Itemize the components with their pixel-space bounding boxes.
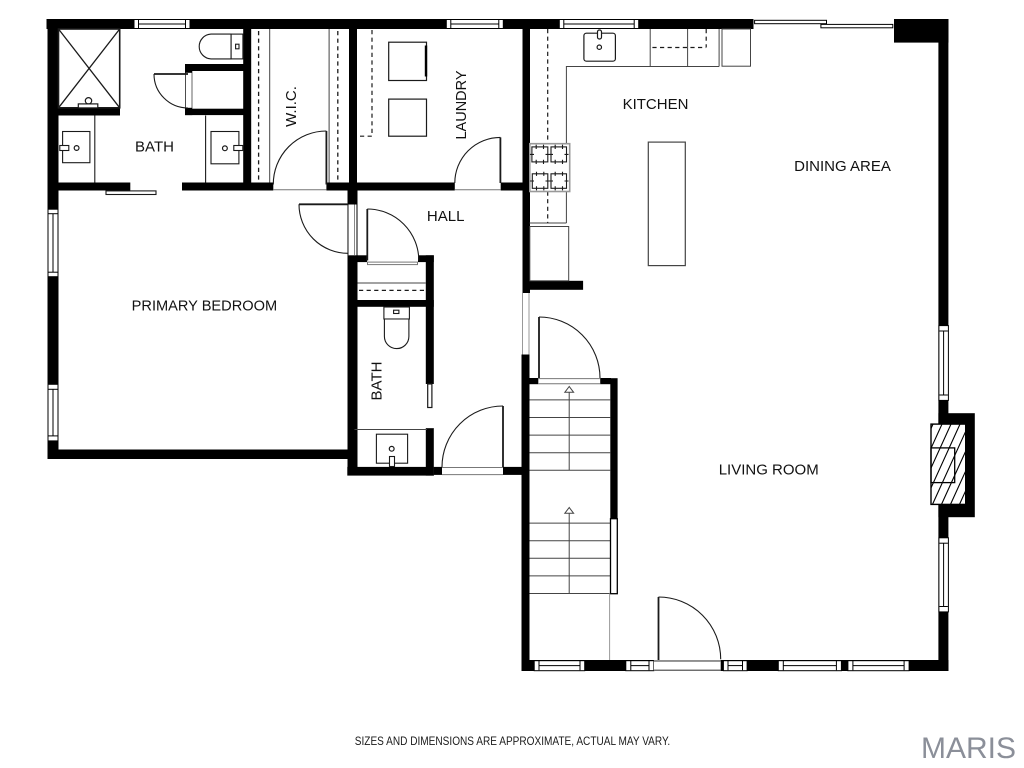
svg-text:W.I.C.: W.I.C. xyxy=(283,86,300,127)
svg-text:DINING AREA: DINING AREA xyxy=(794,158,891,175)
svg-text:BATH: BATH xyxy=(369,362,386,401)
svg-text:PRIMARY BEDROOM: PRIMARY BEDROOM xyxy=(132,299,277,315)
svg-text:HALL: HALL xyxy=(427,208,465,225)
svg-text:LAUNDRY: LAUNDRY xyxy=(454,70,470,139)
svg-text:LIVING ROOM: LIVING ROOM xyxy=(719,462,819,479)
svg-text:KITCHEN: KITCHEN xyxy=(623,96,689,113)
svg-text:MARIS: MARIS xyxy=(921,732,1016,765)
svg-text:SIZES AND DIMENSIONS ARE APPRO: SIZES AND DIMENSIONS ARE APPROXIMATE, AC… xyxy=(355,735,670,748)
svg-text:BATH: BATH xyxy=(135,139,174,156)
